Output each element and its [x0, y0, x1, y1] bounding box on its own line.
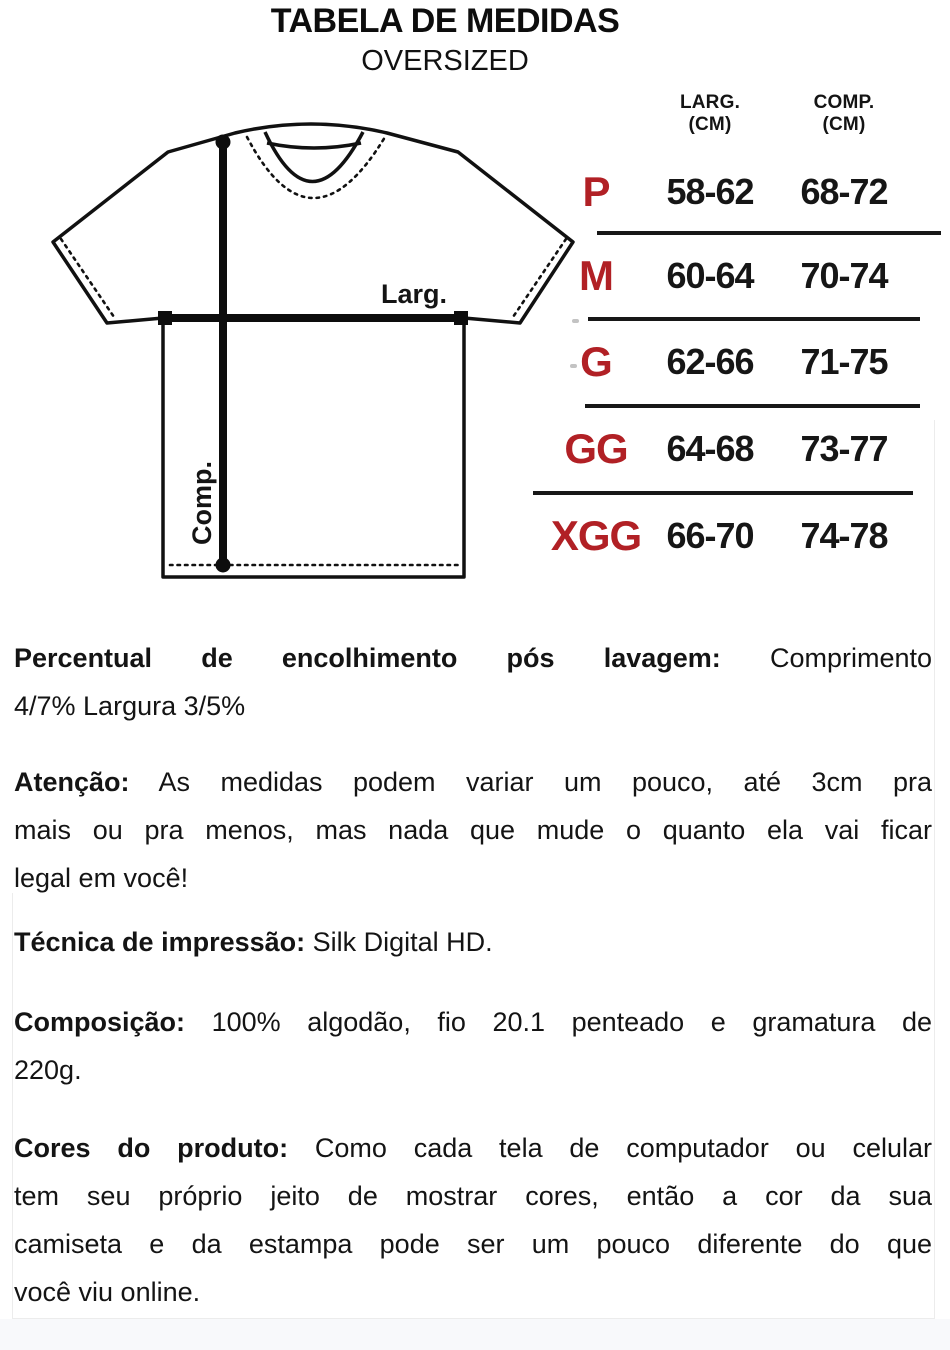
comp-value: 73-77 — [779, 425, 909, 473]
paragraph-shrinkage: Percentual de encolhimento pós lavagem: … — [14, 634, 932, 730]
larg-value: 62-66 — [645, 338, 775, 386]
paragraph-label: Percentual de encolhimento pós lavagem: — [14, 643, 721, 673]
text-line: Técnica de impressão: Silk Digital HD. — [14, 918, 932, 966]
width-measure-left-dot — [158, 311, 172, 325]
size-label: XGG — [531, 512, 661, 560]
print-smudge — [570, 364, 577, 368]
size-label: GG — [531, 425, 661, 473]
text-line: legal em você! — [14, 854, 932, 902]
text-line: 220g. — [14, 1046, 932, 1094]
text-line: você viu online. — [14, 1268, 932, 1316]
paragraph-label: Atenção: — [14, 767, 130, 797]
paragraph-composition: Composição: 100% algodão, fio 20.1 pente… — [14, 998, 932, 1094]
text-line: Atenção: As medidas podem variar um pouc… — [14, 758, 932, 806]
row-separator — [585, 404, 920, 408]
larg-value: 66-70 — [645, 512, 775, 560]
text-line: Composição: 100% algodão, fio 20.1 pente… — [14, 998, 932, 1046]
row-separator — [533, 491, 913, 495]
size-row-gg: GG64-6873-77 — [0, 425, 950, 473]
paragraph-attention: Atenção: As medidas podem variar um pouc… — [14, 758, 932, 902]
row-separator — [597, 231, 941, 235]
text-line: Percentual de encolhimento pós lavagem: … — [14, 634, 932, 682]
size-guide-page: TABELA DE MEDIDAS OVERSIZED Larg. Comp. … — [0, 0, 950, 1350]
paragraph-label: Técnica de impressão: — [14, 927, 305, 957]
text-line: tem seu próprio jeito de mostrar cores, … — [14, 1172, 932, 1220]
print-smudge — [572, 319, 579, 323]
text-line: mais ou pra menos, mas nada que mude o q… — [14, 806, 932, 854]
width-measure-right-dot — [454, 311, 468, 325]
size-row-g: G62-6671-75 — [0, 338, 950, 386]
text-line: Cores do produto: Como cada tela de comp… — [14, 1124, 932, 1172]
row-separator — [588, 317, 920, 321]
size-label: M — [531, 252, 661, 300]
comp-value: 70-74 — [779, 252, 909, 300]
info-box-right-border — [934, 420, 935, 1318]
column-header-comp: COMP. (CM) — [784, 92, 904, 136]
size-label: P — [531, 168, 661, 216]
page-subtitle: OVERSIZED — [0, 44, 890, 78]
length-measure-top-dot — [216, 135, 231, 150]
paragraph-colors: Cores do produto: Como cada tela de comp… — [14, 1124, 932, 1316]
text-line: camiseta e da estampa pode ser um pouco … — [14, 1220, 932, 1268]
size-label: G — [531, 338, 661, 386]
column-header-larg-unit: (CM) — [650, 114, 770, 136]
text-line: 4/7% Largura 3/5% — [14, 682, 932, 730]
comp-value: 68-72 — [779, 168, 909, 216]
size-row-p: P58-6268-72 — [0, 168, 950, 216]
column-header-larg-title: LARG. — [650, 92, 770, 114]
paragraph-label: Composição: — [14, 1007, 185, 1037]
info-box-left-border — [12, 893, 13, 1318]
page-bottom-margin — [0, 1319, 950, 1350]
larg-value: 60-64 — [645, 252, 775, 300]
size-row-xgg: XGG66-7074-78 — [0, 512, 950, 560]
comp-value: 71-75 — [779, 338, 909, 386]
paragraph-printing: Técnica de impressão: Silk Digital HD. — [14, 918, 932, 966]
paragraph-label: Cores do produto: — [14, 1133, 288, 1163]
column-header-comp-unit: (CM) — [784, 114, 904, 136]
column-header-comp-title: COMP. — [784, 92, 904, 114]
larg-value: 64-68 — [645, 425, 775, 473]
column-header-larg: LARG. (CM) — [650, 92, 770, 136]
size-row-m: M60-6470-74 — [0, 252, 950, 300]
comp-value: 74-78 — [779, 512, 909, 560]
larg-value: 58-62 — [645, 168, 775, 216]
page-title: TABELA DE MEDIDAS — [0, 2, 890, 40]
